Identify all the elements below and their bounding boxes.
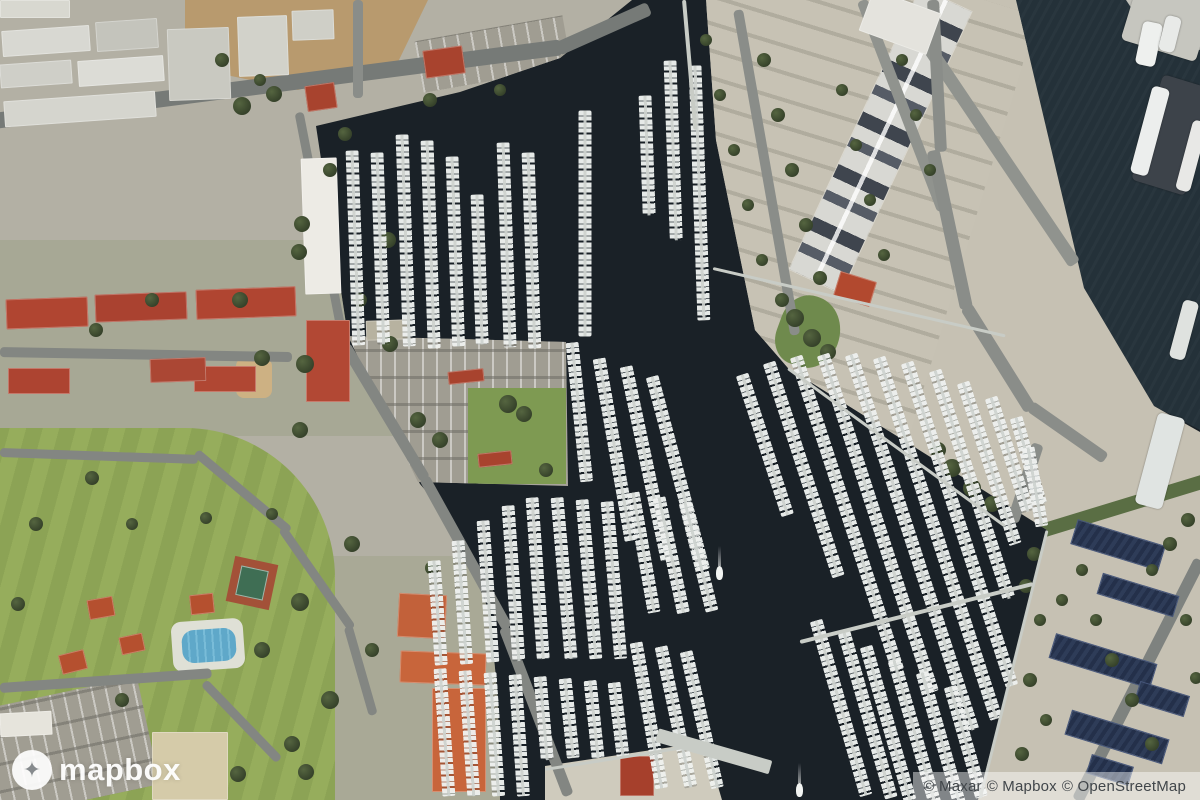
map-attribution: © Maxar © Mapbox © OpenStreetMap xyxy=(913,772,1200,800)
boat xyxy=(716,566,723,580)
dock-row xyxy=(522,152,542,348)
mapbox-logo-circle: ✦ xyxy=(12,750,52,790)
dock-row xyxy=(576,499,603,660)
dock-row xyxy=(559,678,580,759)
attribution-mapbox[interactable]: © Mapbox xyxy=(987,778,1057,795)
dock-row xyxy=(371,152,391,344)
attribution-maxar[interactable]: © Maxar xyxy=(923,778,981,795)
mapbox-logo-text: mapbox xyxy=(59,752,181,788)
mapbox-logo[interactable]: ✦ mapbox xyxy=(12,750,181,790)
pier-walkway xyxy=(979,530,1049,799)
dock-row xyxy=(346,150,366,345)
marina-docks-layer xyxy=(0,0,1200,800)
dock-row xyxy=(497,142,517,347)
dock-row xyxy=(428,560,448,666)
dock-row xyxy=(396,134,416,346)
dock-row xyxy=(434,668,456,797)
dock-row xyxy=(534,676,554,761)
dock-row xyxy=(639,95,656,215)
dock-row xyxy=(502,505,526,662)
boat xyxy=(796,783,803,797)
satellite-map[interactable]: ✦ mapbox © Maxar © Mapbox © OpenStreetMa… xyxy=(0,0,1200,800)
ship xyxy=(1134,412,1185,510)
ship xyxy=(1169,299,1200,361)
dock-row xyxy=(452,540,474,665)
dock-row xyxy=(608,682,630,757)
dock-row xyxy=(459,670,481,797)
dock-row xyxy=(584,680,605,759)
dock-row xyxy=(664,60,683,240)
dock-row xyxy=(526,497,550,660)
dock-row xyxy=(509,674,530,797)
mapbox-star-icon: ✦ xyxy=(23,759,41,781)
dock-row xyxy=(579,111,592,337)
pier-walkway xyxy=(713,267,1006,337)
dock-row xyxy=(446,156,466,346)
dock-row xyxy=(566,342,594,483)
dock-row xyxy=(421,140,441,348)
dock-row xyxy=(551,497,578,660)
attribution-osm[interactable]: © OpenStreetMap xyxy=(1062,778,1186,795)
dock-row xyxy=(471,194,489,344)
dock-row xyxy=(484,672,506,797)
dock-row xyxy=(477,520,500,663)
